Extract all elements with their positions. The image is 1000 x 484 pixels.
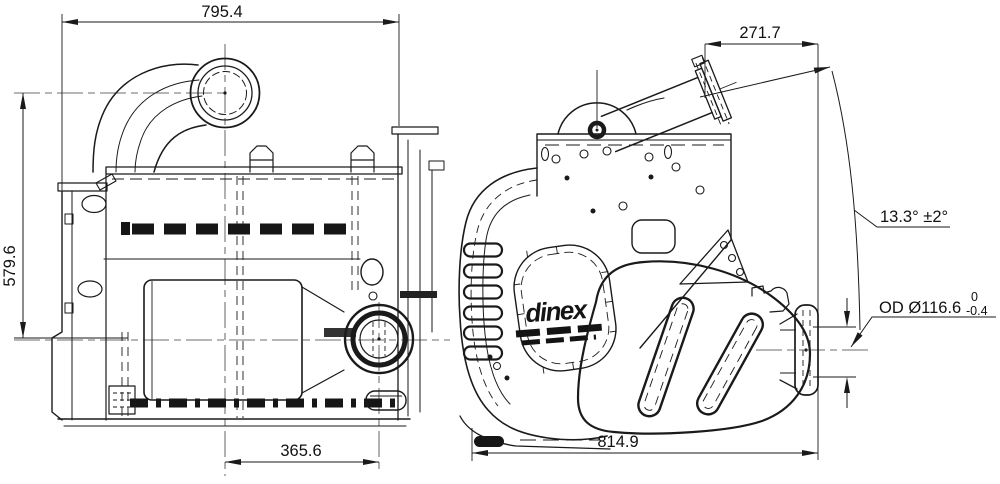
dim-text-od-tol-upper: 0: [971, 290, 978, 304]
dim-text-365: 365.6: [280, 442, 321, 460]
front-centerlines: [14, 44, 450, 476]
dim-text-angle: 13.3° ±2°: [880, 208, 948, 226]
dim-inlet-angle: 13.3° ±2°: [700, 67, 950, 330]
side-view: dinex: [459, 24, 996, 461]
front-bottom-strap: [58, 386, 410, 426]
dim-outlet-od: OD Ø116.6 0 -0.4: [813, 290, 996, 408]
dim-text-od: OD Ø116.6: [879, 299, 961, 317]
side-shell: [578, 261, 810, 433]
front-view: 795.4 579.6 365.6: [1, 3, 450, 476]
front-outlet-port: [345, 305, 413, 373]
technical-drawing: 795.4 579.6 365.6: [0, 0, 1000, 484]
drawing-canvas: 795.4 579.6 365.6: [0, 0, 1000, 484]
inlet-elbow: [93, 64, 206, 172]
dim-text-271: 271.7: [739, 24, 780, 42]
dim-text-579: 579.6: [1, 245, 19, 286]
dim-text-814: 814.9: [597, 433, 638, 451]
dim-text-795: 795.4: [201, 3, 242, 21]
brand-logo-text: dinex: [524, 294, 589, 328]
side-inlet-pipe: [594, 47, 750, 167]
side-outlet-flange: [756, 305, 872, 395]
dim-front-port-distance: 365.6: [225, 442, 379, 465]
dim-text-od-tol-lower: -0.4: [966, 304, 988, 318]
